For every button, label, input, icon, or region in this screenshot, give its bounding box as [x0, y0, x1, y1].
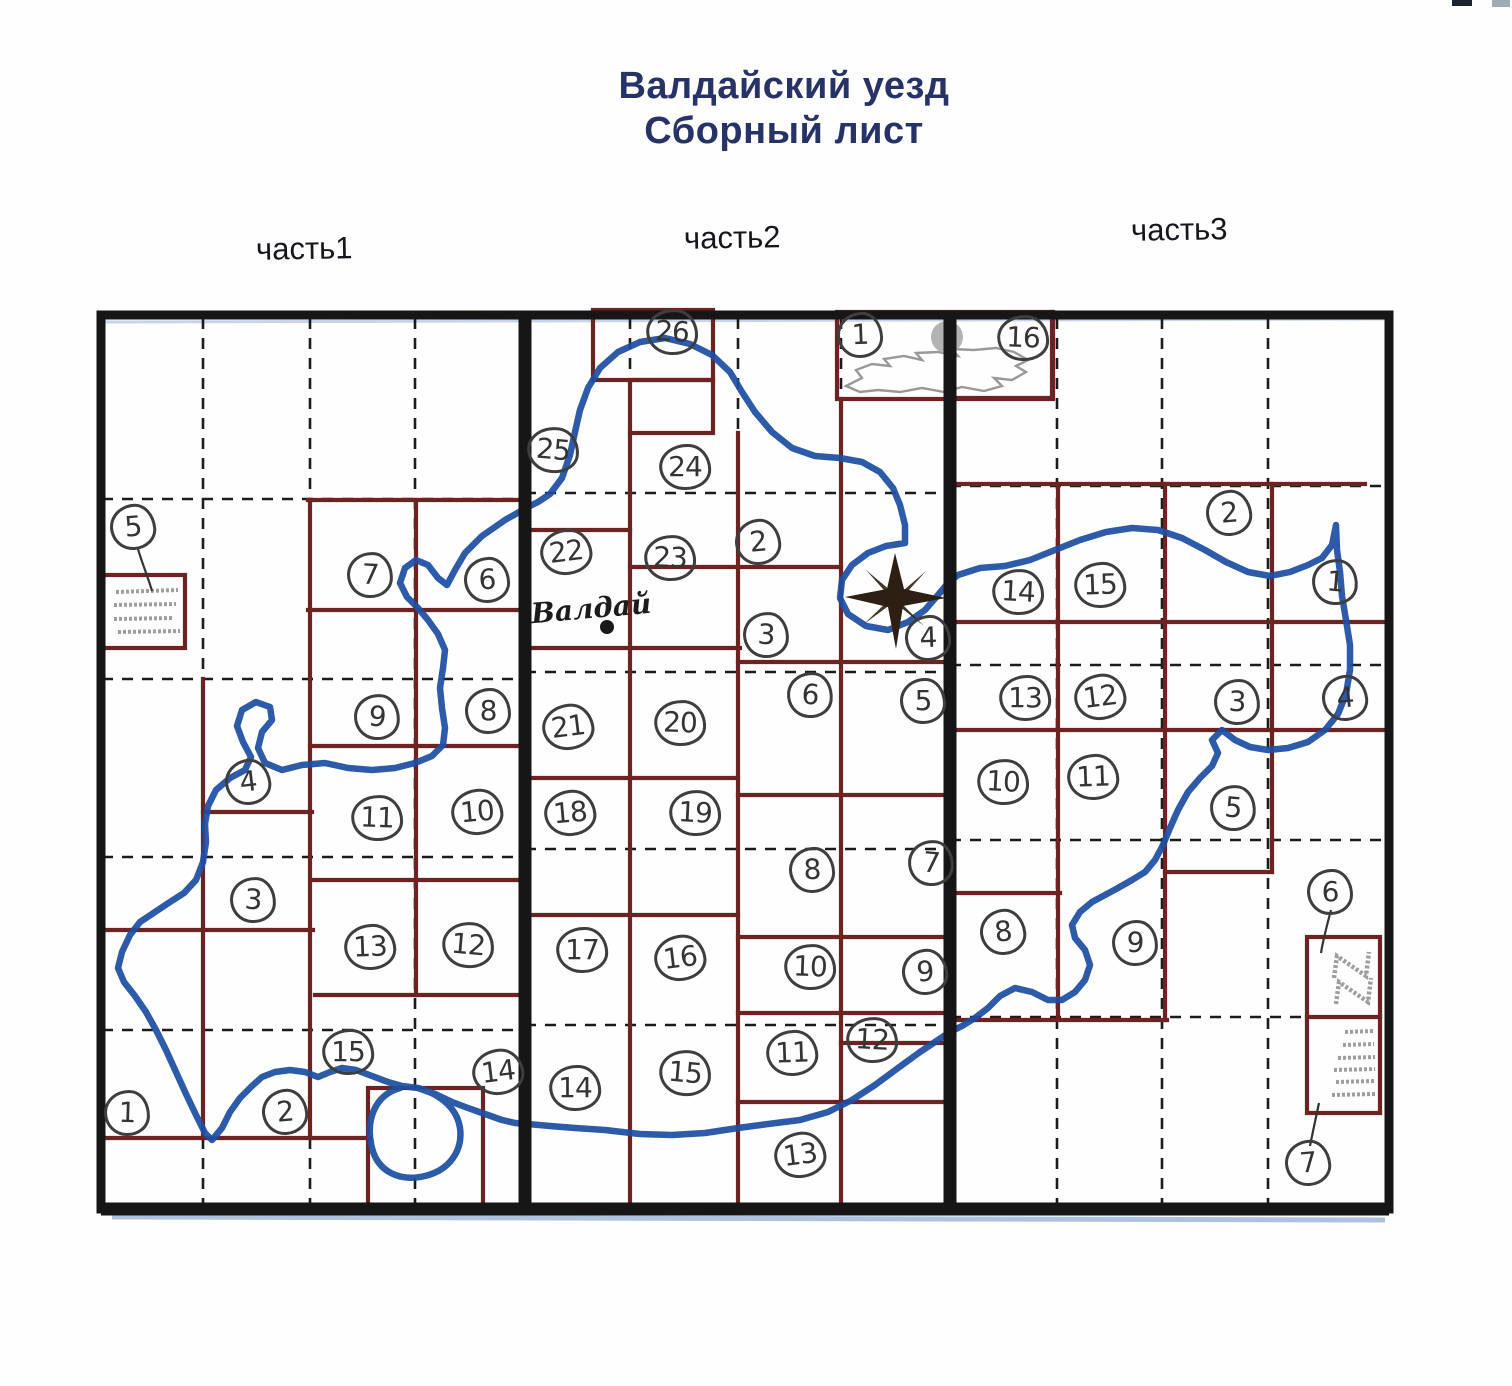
legend-connectors [138, 549, 1331, 1146]
right-legend-zigzag [1334, 952, 1371, 1004]
scan-artifacts [1452, 0, 1510, 7]
left-legend-hatch [114, 590, 180, 632]
sheet-number-part1-11: 11 [350, 794, 403, 842]
sheet-number-part3-13: 13 [999, 675, 1051, 721]
scanned-index-sheet: Валдайский уезд Сборный лист часть1 част… [0, 0, 1512, 1386]
right-legend-hatch [1332, 1031, 1375, 1095]
sheet-number-part3-9: 9 [1111, 919, 1159, 967]
lake-outline [846, 348, 1028, 392]
sheet-number-part2-24: 24 [659, 444, 711, 490]
sheet-number-part1-8: 8 [465, 688, 511, 734]
sheet-number-part2-11: 11 [765, 1029, 818, 1077]
sheet-number-part2-17: 17 [556, 927, 608, 973]
sheet-number-part1-6: 6 [463, 556, 511, 604]
map-frame [101, 315, 1389, 1209]
sheet-number-part2-23: 23 [643, 534, 696, 582]
legend-symbols [114, 348, 1375, 1095]
sheet-number-part1-1: 1 [103, 1089, 151, 1137]
sheet-number-part2-14: 14 [549, 1065, 601, 1111]
index-map-graphics [0, 0, 1512, 1386]
sheet-number-part2-10: 10 [783, 943, 836, 991]
sheet-number-part2-1: 1 [836, 311, 884, 359]
sheet-number-part2-5: 5 [900, 678, 946, 724]
sheet-number-part3-11: 11 [1066, 753, 1119, 801]
sheet-number-part3-15: 15 [1073, 561, 1126, 609]
sheet-number-part3-6: 6 [1307, 869, 1353, 915]
sheet-number-part3-16: 16 [996, 314, 1049, 362]
sheet-number-part2-4: 4 [904, 614, 952, 662]
sheet-number-part2-8: 8 [788, 846, 836, 894]
sheet-number-part2-20: 20 [653, 699, 706, 747]
sheet-number-part1-13: 13 [343, 923, 396, 971]
sheet-number-part3-3: 3 [1213, 678, 1261, 726]
valday-town-dot [600, 620, 614, 634]
sheet-number-part1-15: 15 [322, 1029, 374, 1075]
